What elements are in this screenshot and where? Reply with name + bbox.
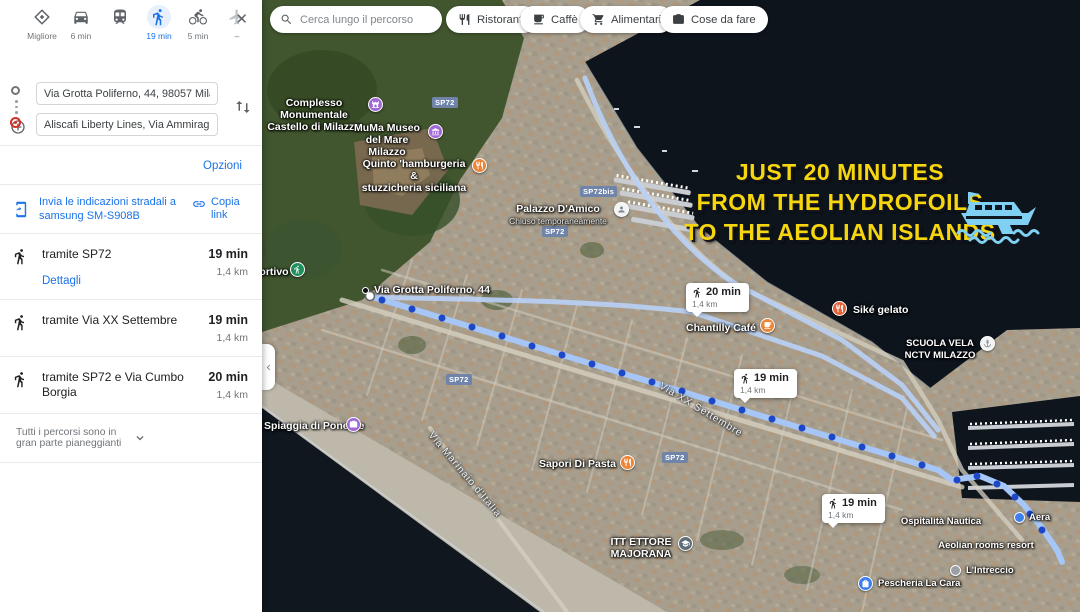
monument-poi-icon[interactable] [614, 202, 629, 217]
restaurant-poi-icon[interactable] [472, 158, 487, 173]
best-route-icon [30, 5, 54, 29]
mode-bike-label: 5 min [188, 31, 209, 41]
bike-icon [186, 5, 210, 29]
chip-label: Caffè [551, 14, 578, 26]
route-time: 19 min [208, 313, 248, 327]
route-via: tramite SP72 e Via Cumbo Borgia [42, 370, 195, 400]
transit-icon [108, 5, 132, 29]
mode-car-label: 6 min [71, 31, 92, 41]
poi-aeolian-rooms[interactable]: Aeolian rooms resort [930, 540, 1042, 552]
cart-icon [592, 13, 605, 26]
search-along-route-input[interactable] [300, 14, 432, 26]
mode-walk-selected[interactable]: 19 min [145, 5, 173, 41]
route-option-2[interactable]: tramite Via XX Settembre 19 min 1,4 km [0, 300, 262, 357]
walk-icon [147, 5, 171, 29]
route-time-badge-19min[interactable]: 19 min 1,4 km [734, 369, 797, 398]
routes-terrain-note: Tutti i percorsi sono in gran parte pian… [0, 414, 262, 463]
search-along-route [270, 6, 442, 33]
car-icon [69, 5, 93, 29]
route-time-badge-19min-2[interactable]: 19 min 1,4 km [822, 494, 885, 523]
swap-origin-destination-icon[interactable] [234, 98, 252, 116]
mode-transit[interactable] [106, 5, 134, 31]
copy-link-label: Copia link [211, 196, 250, 222]
camera-icon [672, 13, 685, 26]
options-link[interactable]: Opzioni [203, 160, 242, 172]
chip-label: Alimentari [611, 14, 661, 26]
route-details-link[interactable]: Dettagli [42, 275, 195, 287]
chip-label: Ristoranti [477, 14, 525, 26]
castle-poi-icon[interactable] [368, 97, 383, 112]
road-badge-sp72bis: SP72bis [580, 186, 617, 197]
route-option-1[interactable]: tramite SP72 Dettagli 19 min 1,4 km [0, 234, 262, 300]
sports-poi-icon[interactable] [290, 262, 305, 277]
walk-icon [828, 498, 839, 509]
beach-camera-poi-icon[interactable] [346, 417, 361, 432]
poi-aera[interactable]: Aera [1029, 512, 1050, 524]
route-via: tramite SP72 [42, 247, 195, 262]
lodging-poi-icon[interactable] [950, 565, 961, 576]
road-badge-sp72: SP72 [446, 374, 472, 385]
poi-scuola-vela[interactable]: SCUOLA VELANCTV MILAZZO [900, 338, 980, 362]
options-row: Opzioni [0, 146, 262, 184]
chip-things-to-do[interactable]: Cose da fare [660, 6, 768, 33]
route-distance: 1,4 km [208, 389, 248, 401]
poi-sike-gelato[interactable]: Siké gelato [853, 304, 908, 316]
walk-icon [12, 314, 29, 331]
road-badge-sp72: SP72 [662, 452, 688, 463]
marina-poi-icon[interactable] [1014, 512, 1025, 523]
gelato-poi-icon[interactable] [832, 301, 847, 316]
poi-lintreccio[interactable]: L'Intreccio [966, 565, 1014, 577]
origin-address-label[interactable]: Via Grotta Poliferno, 44 [362, 284, 490, 296]
route-dots-icon [15, 100, 18, 114]
poi-quinto-hamburgeria[interactable]: Quinto 'hamburgeria &stuzzicheria sicili… [358, 158, 470, 194]
walk-icon [692, 287, 703, 298]
walk-icon [12, 371, 29, 388]
collapse-sidebar-tab[interactable] [262, 344, 275, 390]
mode-walk-label: 19 min [146, 31, 172, 41]
chevron-down-icon[interactable] [133, 431, 250, 445]
poi-ospitalita-nautica[interactable]: Ospitalità Nautica [894, 516, 988, 528]
map-canvas[interactable]: Ristoranti Caffè Alimentari Cose da fare… [262, 0, 1080, 612]
terrain-note-label: Tutti i percorsi sono in gran parte pian… [16, 427, 133, 449]
copy-link-button[interactable]: Copia link [192, 196, 250, 222]
link-icon [192, 197, 206, 211]
chip-label: Cose da fare [691, 14, 756, 26]
send-directions-link[interactable]: Invia le indicazioni stradali a samsung … [39, 195, 182, 223]
road-badge-sp72: SP72 [542, 226, 568, 237]
mode-best-label: Migliore [27, 31, 57, 41]
overlay-line3: TO THE AEOLIAN ISLANDS [682, 217, 998, 247]
poi-sapori-di-pasta[interactable]: Sapori Di Pasta [520, 458, 616, 470]
annotation-overlay-text: JUST 20 MINUTES FROM THE HYDROFOILS TO T… [682, 157, 998, 247]
sailing-school-poi-icon[interactable] [980, 336, 995, 351]
mode-bike[interactable]: 5 min [184, 5, 212, 41]
route-time: 19 min [208, 247, 248, 261]
hydrofoil-boat-illustration [956, 184, 1042, 246]
fish-shop-poi-icon[interactable] [858, 576, 873, 591]
mode-plane-label: – [235, 31, 240, 41]
mode-best[interactable]: Migliore [28, 5, 56, 41]
museum-poi-icon[interactable] [428, 124, 443, 139]
travel-mode-bar: Migliore 6 min 19 min 5 min – [0, 0, 262, 41]
road-badge-sp72: SP72 [432, 97, 458, 108]
search-icon [280, 13, 293, 26]
destination-pin-icon [10, 117, 21, 128]
mode-car[interactable]: 6 min [67, 5, 95, 41]
origin-destination-fields [0, 41, 262, 107]
origin-marker-icon [11, 86, 20, 95]
walk-icon [12, 248, 29, 265]
poi-pescheria[interactable]: Pescheria La Cara [878, 578, 960, 590]
send-directions-row: Invia le indicazioni stradali a samsung … [0, 184, 262, 234]
cafe-icon [532, 13, 545, 26]
poi-itt-ettore-majorana[interactable]: ITT ETTOREMAJORANA [606, 536, 676, 560]
send-to-phone-icon [12, 201, 29, 218]
route-via: tramite Via XX Settembre [42, 313, 195, 328]
pasta-restaurant-poi-icon[interactable] [620, 455, 635, 470]
directions-sidebar: Migliore 6 min 19 min 5 min – [0, 0, 262, 612]
destination-input[interactable] [36, 113, 218, 136]
overlay-line2: FROM THE HYDROFOILS [682, 187, 998, 217]
route-time-badge-20min[interactable]: 20 min 1,4 km [686, 283, 749, 312]
route-time: 20 min [208, 370, 248, 384]
google-maps-directions-app: Migliore 6 min 19 min 5 min – [0, 0, 1080, 612]
poi-muma-museo[interactable]: MuMa Museodel Mare Milazzo [348, 122, 426, 158]
school-poi-icon[interactable] [678, 536, 693, 551]
origin-dot-icon [362, 287, 369, 294]
route-distance: 1,4 km [208, 332, 248, 344]
poi-sportivo[interactable]: Sportivo [262, 266, 289, 278]
overlay-line1: JUST 20 MINUTES [682, 157, 998, 187]
poi-palazzo-damico[interactable]: Palazzo D'AmicoChiuso temporaneamente [504, 203, 612, 227]
walk-icon [740, 373, 751, 384]
poi-chantilly-cafe[interactable]: Chantilly Café [660, 322, 756, 334]
restaurant-icon [458, 13, 471, 26]
route-distance: 1,4 km [208, 266, 248, 278]
route-option-3[interactable]: tramite SP72 e Via Cumbo Borgia 20 min 1… [0, 357, 262, 414]
close-directions-icon[interactable]: ✕ [235, 10, 248, 28]
origin-input[interactable] [36, 82, 218, 105]
cafe-poi-icon[interactable] [760, 318, 775, 333]
